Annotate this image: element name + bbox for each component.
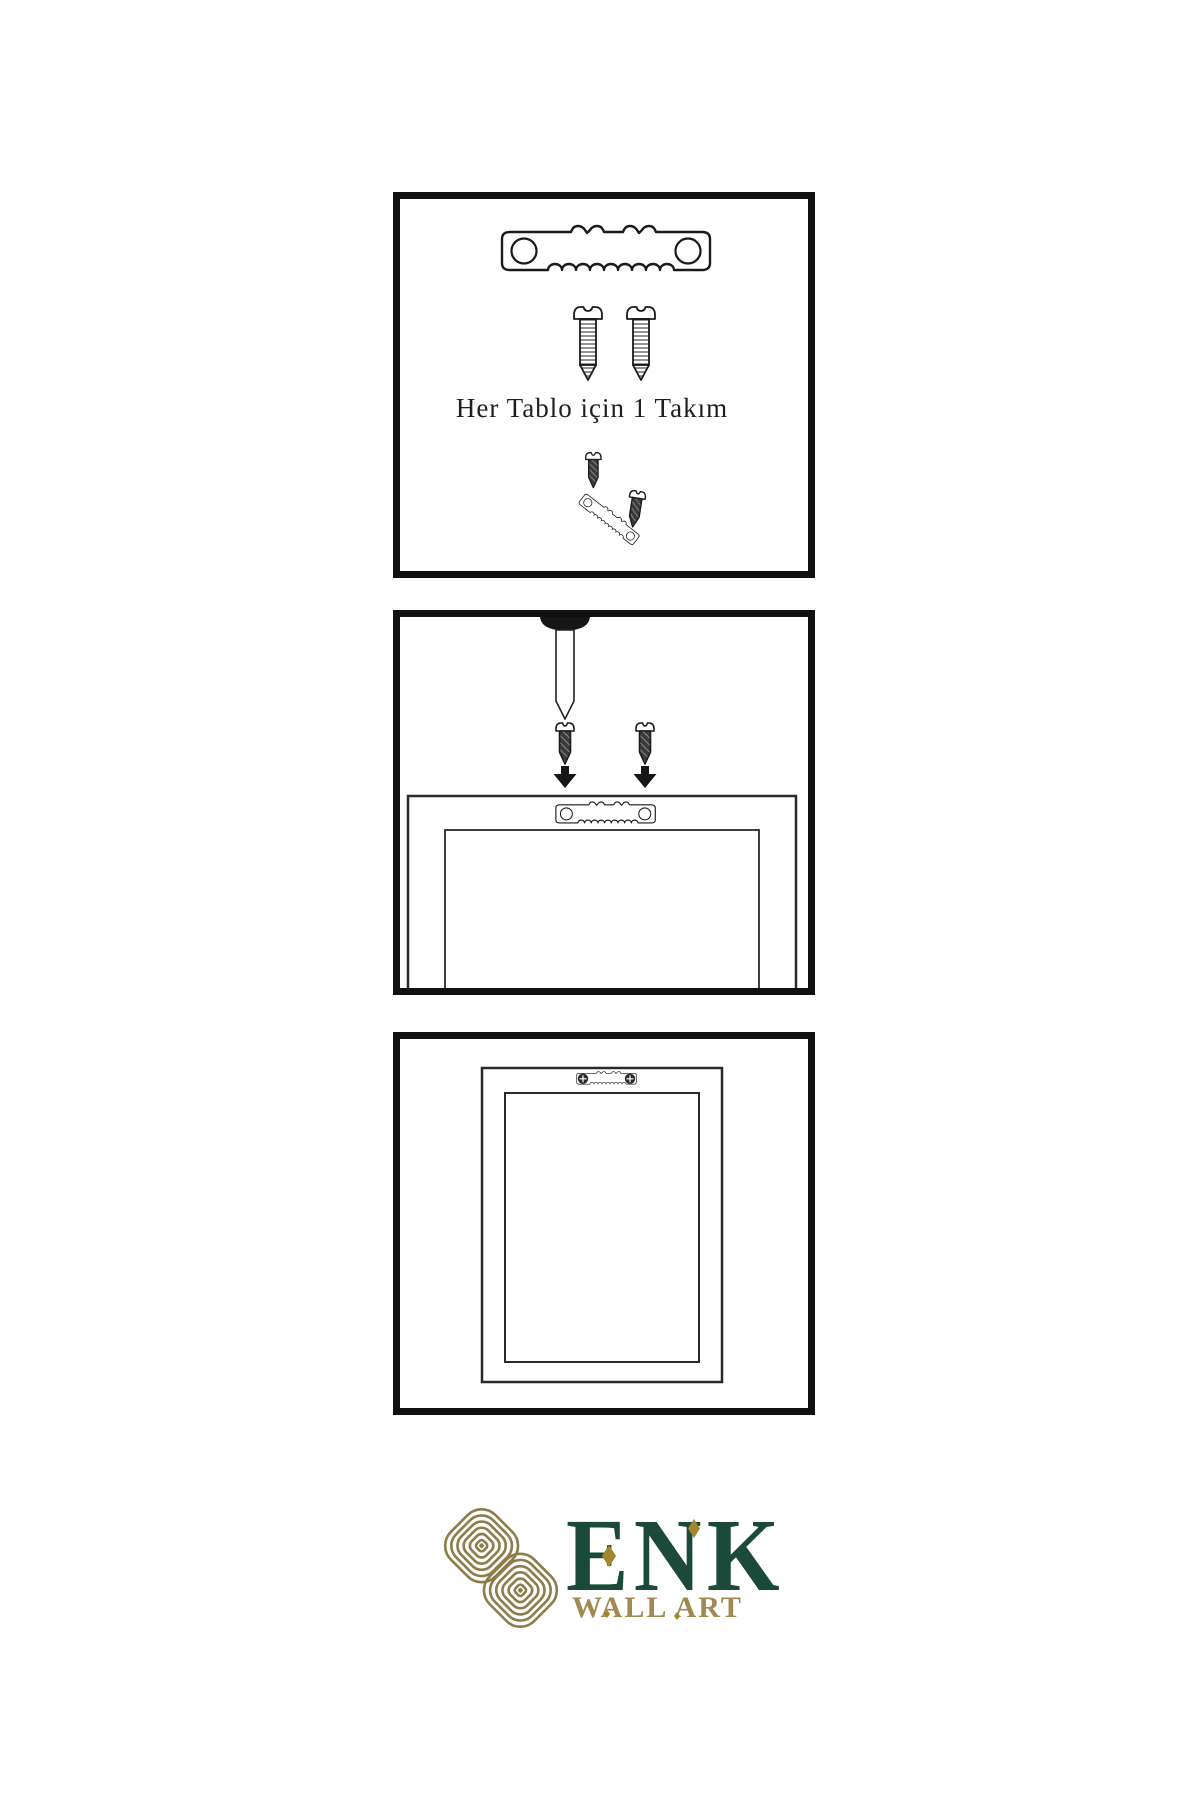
- picture-frame-icon: [482, 1068, 722, 1382]
- diamond-accent-icon: [602, 1545, 616, 1567]
- step-2-mount-panel: [393, 610, 815, 995]
- screw-head-icon: [578, 1074, 588, 1084]
- sawtooth-hanger-icon: [502, 226, 710, 270]
- dark-screw-icon: [636, 723, 654, 764]
- step-1-hardware-panel: Her Tablo için 1 Takım: [393, 192, 815, 578]
- screw-head-icon: [625, 1074, 635, 1084]
- knot-logo-icon: [438, 1500, 564, 1636]
- hardware-kit-graphic: [400, 199, 808, 571]
- diamond-accent-icon: [674, 1612, 680, 1620]
- screw-icon: [627, 307, 655, 380]
- arrow-down-icon: [554, 766, 577, 788]
- hanging-frame-graphic: [400, 1039, 808, 1408]
- screw-icon: [574, 307, 602, 380]
- dark-screw-icon: [556, 723, 574, 764]
- instruction-sheet: Her Tablo için 1 Takım: [0, 0, 1200, 1800]
- frame-back-icon: [408, 796, 796, 988]
- dark-screw-icon: [586, 453, 601, 488]
- dark-screw-icon: [625, 490, 646, 528]
- arrow-down-icon: [634, 766, 657, 788]
- step-3-hang-panel: [393, 1032, 815, 1415]
- kit-caption: Her Tablo için 1 Takım: [400, 393, 808, 424]
- nail-icon: [540, 617, 590, 719]
- brand-subtitle: WALL ART: [572, 1592, 743, 1624]
- diamond-accent-icon: [604, 1610, 610, 1618]
- diamond-accent-icon: [688, 1519, 700, 1538]
- sawtooth-hanger-icon: [556, 802, 655, 823]
- mounting-graphic: [400, 617, 808, 988]
- brand-name: ENK: [566, 1504, 785, 1608]
